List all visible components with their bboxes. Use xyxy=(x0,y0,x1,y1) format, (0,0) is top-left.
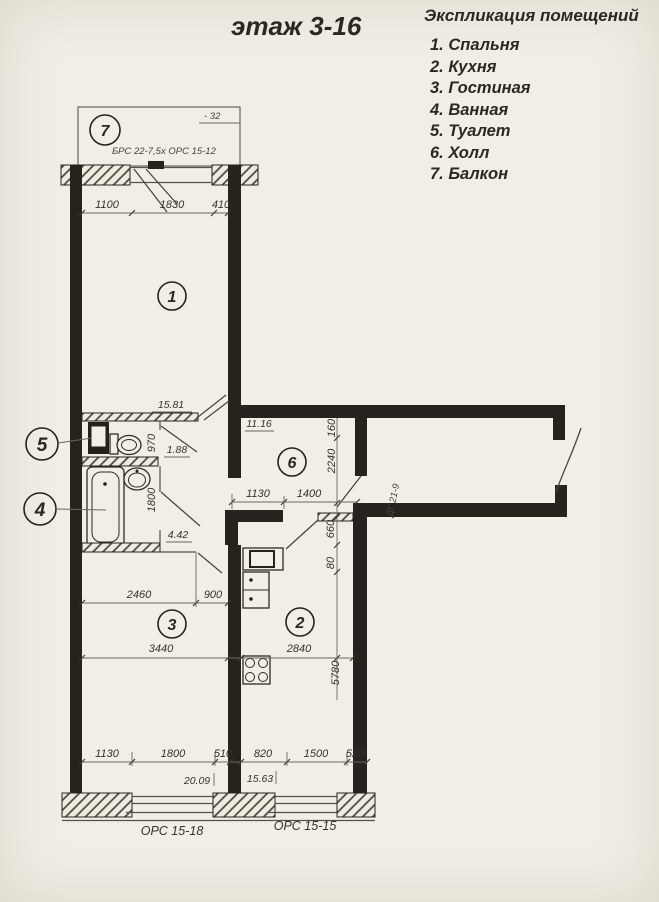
bathtub-drain xyxy=(103,482,107,486)
dim-wc: 970 xyxy=(146,433,158,452)
page-title: этаж 3-16 xyxy=(231,11,362,41)
window-label-left: ОРС 15-18 xyxy=(141,824,204,838)
legend-item: 1. Спальня xyxy=(430,36,520,54)
area-bedroom: 15.81 xyxy=(158,399,184,411)
dim-bedroom-3: 410 xyxy=(212,199,231,211)
room-number-balcony: 7 xyxy=(101,123,111,140)
wall-entry-stub-top xyxy=(553,418,565,440)
legend-item: 6. Холл xyxy=(430,144,489,162)
dim-kitchen-5780: 5780 xyxy=(330,660,342,685)
dim-kitchen-80: 80 xyxy=(325,556,337,569)
wall-bedroom-east xyxy=(228,165,241,478)
balcony-elevation-mark: - 32 xyxy=(204,111,221,122)
legend-item: 3. Гостиная xyxy=(430,79,531,97)
floor-plan-drawing: этаж 3-16 Экспликация помещений 1. Спаль… xyxy=(0,0,659,902)
dim-bedroom-1: 1100 xyxy=(95,199,120,211)
legend-item: 4. Ванная xyxy=(429,101,509,119)
dim-bottom-1500: 1500 xyxy=(304,748,329,760)
kitchen-door-leaf xyxy=(286,520,318,549)
wall-hall-north xyxy=(241,405,565,418)
south-dimensions: 1130 1800 510 820 1500 520 20.09 15.63 xyxy=(79,748,370,787)
dim-living-2460: 2460 xyxy=(126,589,152,601)
room-number-bedroom: 1 xyxy=(168,289,177,306)
window-label-right: ОРС 15-15 xyxy=(274,819,337,833)
area-wc: 1.88 xyxy=(167,444,188,456)
wall-bedroom-south xyxy=(82,413,198,421)
callout-wc: 5 xyxy=(26,428,92,460)
room-number-hall: 6 xyxy=(288,455,297,472)
room-living: 2460 900 3 3440 xyxy=(79,552,356,661)
sink-tap xyxy=(249,597,253,601)
dim-bottom-520: 520 xyxy=(346,748,365,760)
south-wall: ОРС 15-18 ОРС 15-15 xyxy=(62,793,375,838)
dim-kitchen-2840: 2840 xyxy=(286,643,312,655)
wall-hatched xyxy=(337,793,375,817)
dim-bedroom-2: 1830 xyxy=(160,199,185,211)
balcony: 7 - 32 БРС 22-7,5х ОРС 15-12 xyxy=(78,107,240,166)
balcony-block-label: БРС 22-7,5х ОРС 15-12 xyxy=(112,146,217,157)
wall-west xyxy=(70,165,82,793)
dim-hall-1130: 1130 xyxy=(246,488,271,500)
wall-wc-south xyxy=(82,457,158,466)
cistern-inner xyxy=(91,426,106,447)
legend-heading: Экспликация помещений xyxy=(424,6,639,25)
toilet-bowl-icon xyxy=(117,436,141,455)
area-kitchen: 15.63 xyxy=(247,773,273,785)
dim-hall-160: 160 xyxy=(326,418,338,437)
dim-hall-1400: 1400 xyxy=(297,488,322,500)
window-living xyxy=(126,797,219,813)
dim-bottom-820: 820 xyxy=(254,748,273,760)
wall-hatched xyxy=(62,793,132,817)
sink-tap xyxy=(249,578,253,582)
legend-item: 7. Балкон xyxy=(430,165,508,183)
dim-bottom-510: 510 xyxy=(214,748,233,760)
legend-list: 1. Спальня 2. Кухня 3. Гостиная 4. Ванна… xyxy=(429,36,531,183)
dim-bottom-1800: 1800 xyxy=(161,748,186,760)
dim-kitchen-660: 660 xyxy=(325,519,337,538)
wall-hall-south-stub xyxy=(225,510,238,545)
area-bath: 4.42 xyxy=(168,529,189,541)
wall-kitchen-north xyxy=(318,513,353,521)
window-kitchen xyxy=(269,797,343,813)
bedroom-door-leaf xyxy=(198,395,229,420)
wall-entry-stub-bottom xyxy=(555,485,567,503)
wall-bath-south xyxy=(82,543,160,552)
wall-hatched xyxy=(213,793,275,817)
area-hall: 11.16 xyxy=(246,418,272,430)
legend-item: 2. Кухня xyxy=(429,58,497,76)
dim-bottom-1130: 1130 xyxy=(95,748,120,760)
floor-plan-sheet: этаж 3-16 Экспликация помещений 1. Спаль… xyxy=(0,0,659,902)
room-number-bath: 4 xyxy=(34,500,46,521)
room-number-kitchen: 2 xyxy=(295,615,305,632)
dim-living-3440: 3440 xyxy=(149,643,174,655)
room-bedroom: 1100 1830 410 1 15.81 xyxy=(79,199,231,421)
legend-item: 5. Туалет xyxy=(430,122,510,140)
area-living: 20.09 xyxy=(183,775,210,787)
room-wc: 970 1.88 xyxy=(82,421,197,466)
room-number-wc: 5 xyxy=(37,435,48,456)
window-sill xyxy=(148,161,164,169)
dim-bath: 1800 xyxy=(146,487,158,512)
bath-door-leaf xyxy=(161,492,200,526)
living-door-leaf xyxy=(198,553,222,573)
dim-hall-2240: 2240 xyxy=(326,448,338,474)
washbasin-tap xyxy=(136,470,139,473)
wall-hall-east xyxy=(355,418,367,476)
room-bath: 1800 4.42 xyxy=(82,466,200,552)
room-number-living: 3 xyxy=(168,617,177,634)
dim-living-900: 900 xyxy=(204,589,223,601)
